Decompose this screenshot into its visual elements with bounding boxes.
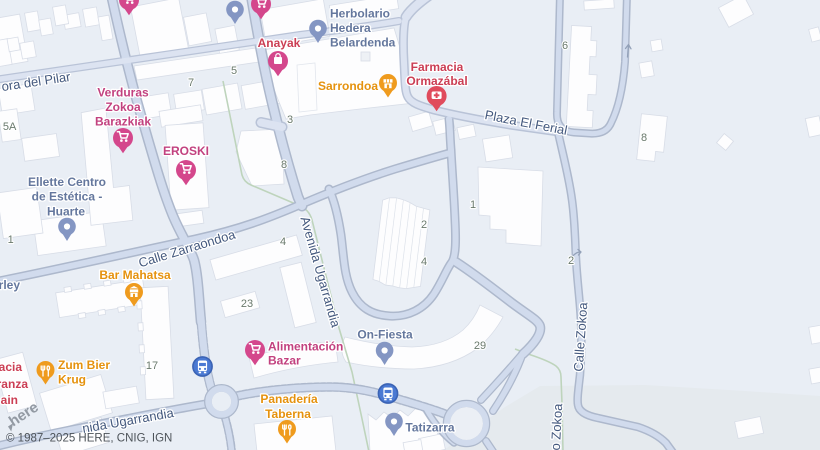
svg-text:Barazkiak: Barazkiak <box>95 115 151 129</box>
svg-text:Krug: Krug <box>58 373 86 387</box>
svg-text:Tatizarra: Tatizarra <box>405 421 454 435</box>
svg-text:8: 8 <box>641 132 647 144</box>
svg-text:Ellette Centro: Ellette Centro <box>28 175 106 189</box>
svg-text:8: 8 <box>281 159 287 171</box>
svg-text:ain: ain <box>1 393 18 407</box>
svg-text:Zum Bier: Zum Bier <box>58 358 110 372</box>
svg-text:Farmacia: Farmacia <box>411 60 464 74</box>
svg-text:Huarte: Huarte <box>47 205 85 219</box>
svg-text:Bar Mahatsa: Bar Mahatsa <box>99 268 171 282</box>
svg-text:4: 4 <box>280 236 286 248</box>
svg-text:2: 2 <box>421 219 427 231</box>
svg-text:© 1987–2025 HERE, CNIG, IGN: © 1987–2025 HERE, CNIG, IGN <box>6 433 172 445</box>
svg-text:23: 23 <box>241 298 253 310</box>
svg-text:5: 5 <box>231 65 237 77</box>
svg-text:7: 7 <box>188 77 194 89</box>
svg-text:Taberna: Taberna <box>265 407 311 421</box>
svg-text:Herbolario: Herbolario <box>330 7 390 21</box>
svg-text:1: 1 <box>8 234 14 246</box>
svg-text:5A: 5A <box>3 121 17 133</box>
svg-text:6: 6 <box>562 40 568 52</box>
svg-text:3: 3 <box>287 114 293 126</box>
svg-text:Alimentación: Alimentación <box>268 340 343 354</box>
svg-text:Sarrondoa: Sarrondoa <box>318 79 378 93</box>
svg-text:EROSKI: EROSKI <box>163 144 209 158</box>
svg-text:ranza: ranza <box>0 377 28 391</box>
svg-text:Ormazábal: Ormazábal <box>406 74 467 88</box>
svg-text:Panadería: Panadería <box>260 392 318 406</box>
svg-text:Verduras: Verduras <box>97 86 149 100</box>
svg-text:2: 2 <box>568 255 574 267</box>
svg-text:macia: macia <box>0 360 22 374</box>
svg-text:On-Fiesta: On-Fiesta <box>357 328 413 342</box>
svg-text:o Zokoa: o Zokoa <box>548 402 565 450</box>
svg-text:17: 17 <box>146 360 158 372</box>
svg-text:Anayak: Anayak <box>258 36 301 50</box>
svg-text:4: 4 <box>421 256 427 268</box>
svg-text:Hedera: Hedera <box>330 21 371 35</box>
svg-text:erley: erley <box>0 278 20 292</box>
svg-text:de Estética -: de Estética - <box>32 190 103 204</box>
svg-text:Bazar: Bazar <box>268 354 301 368</box>
svg-text:1: 1 <box>470 199 476 211</box>
svg-text:29: 29 <box>474 340 486 352</box>
svg-text:Zokoa: Zokoa <box>105 100 141 114</box>
svg-text:Belardenda: Belardenda <box>330 36 396 50</box>
